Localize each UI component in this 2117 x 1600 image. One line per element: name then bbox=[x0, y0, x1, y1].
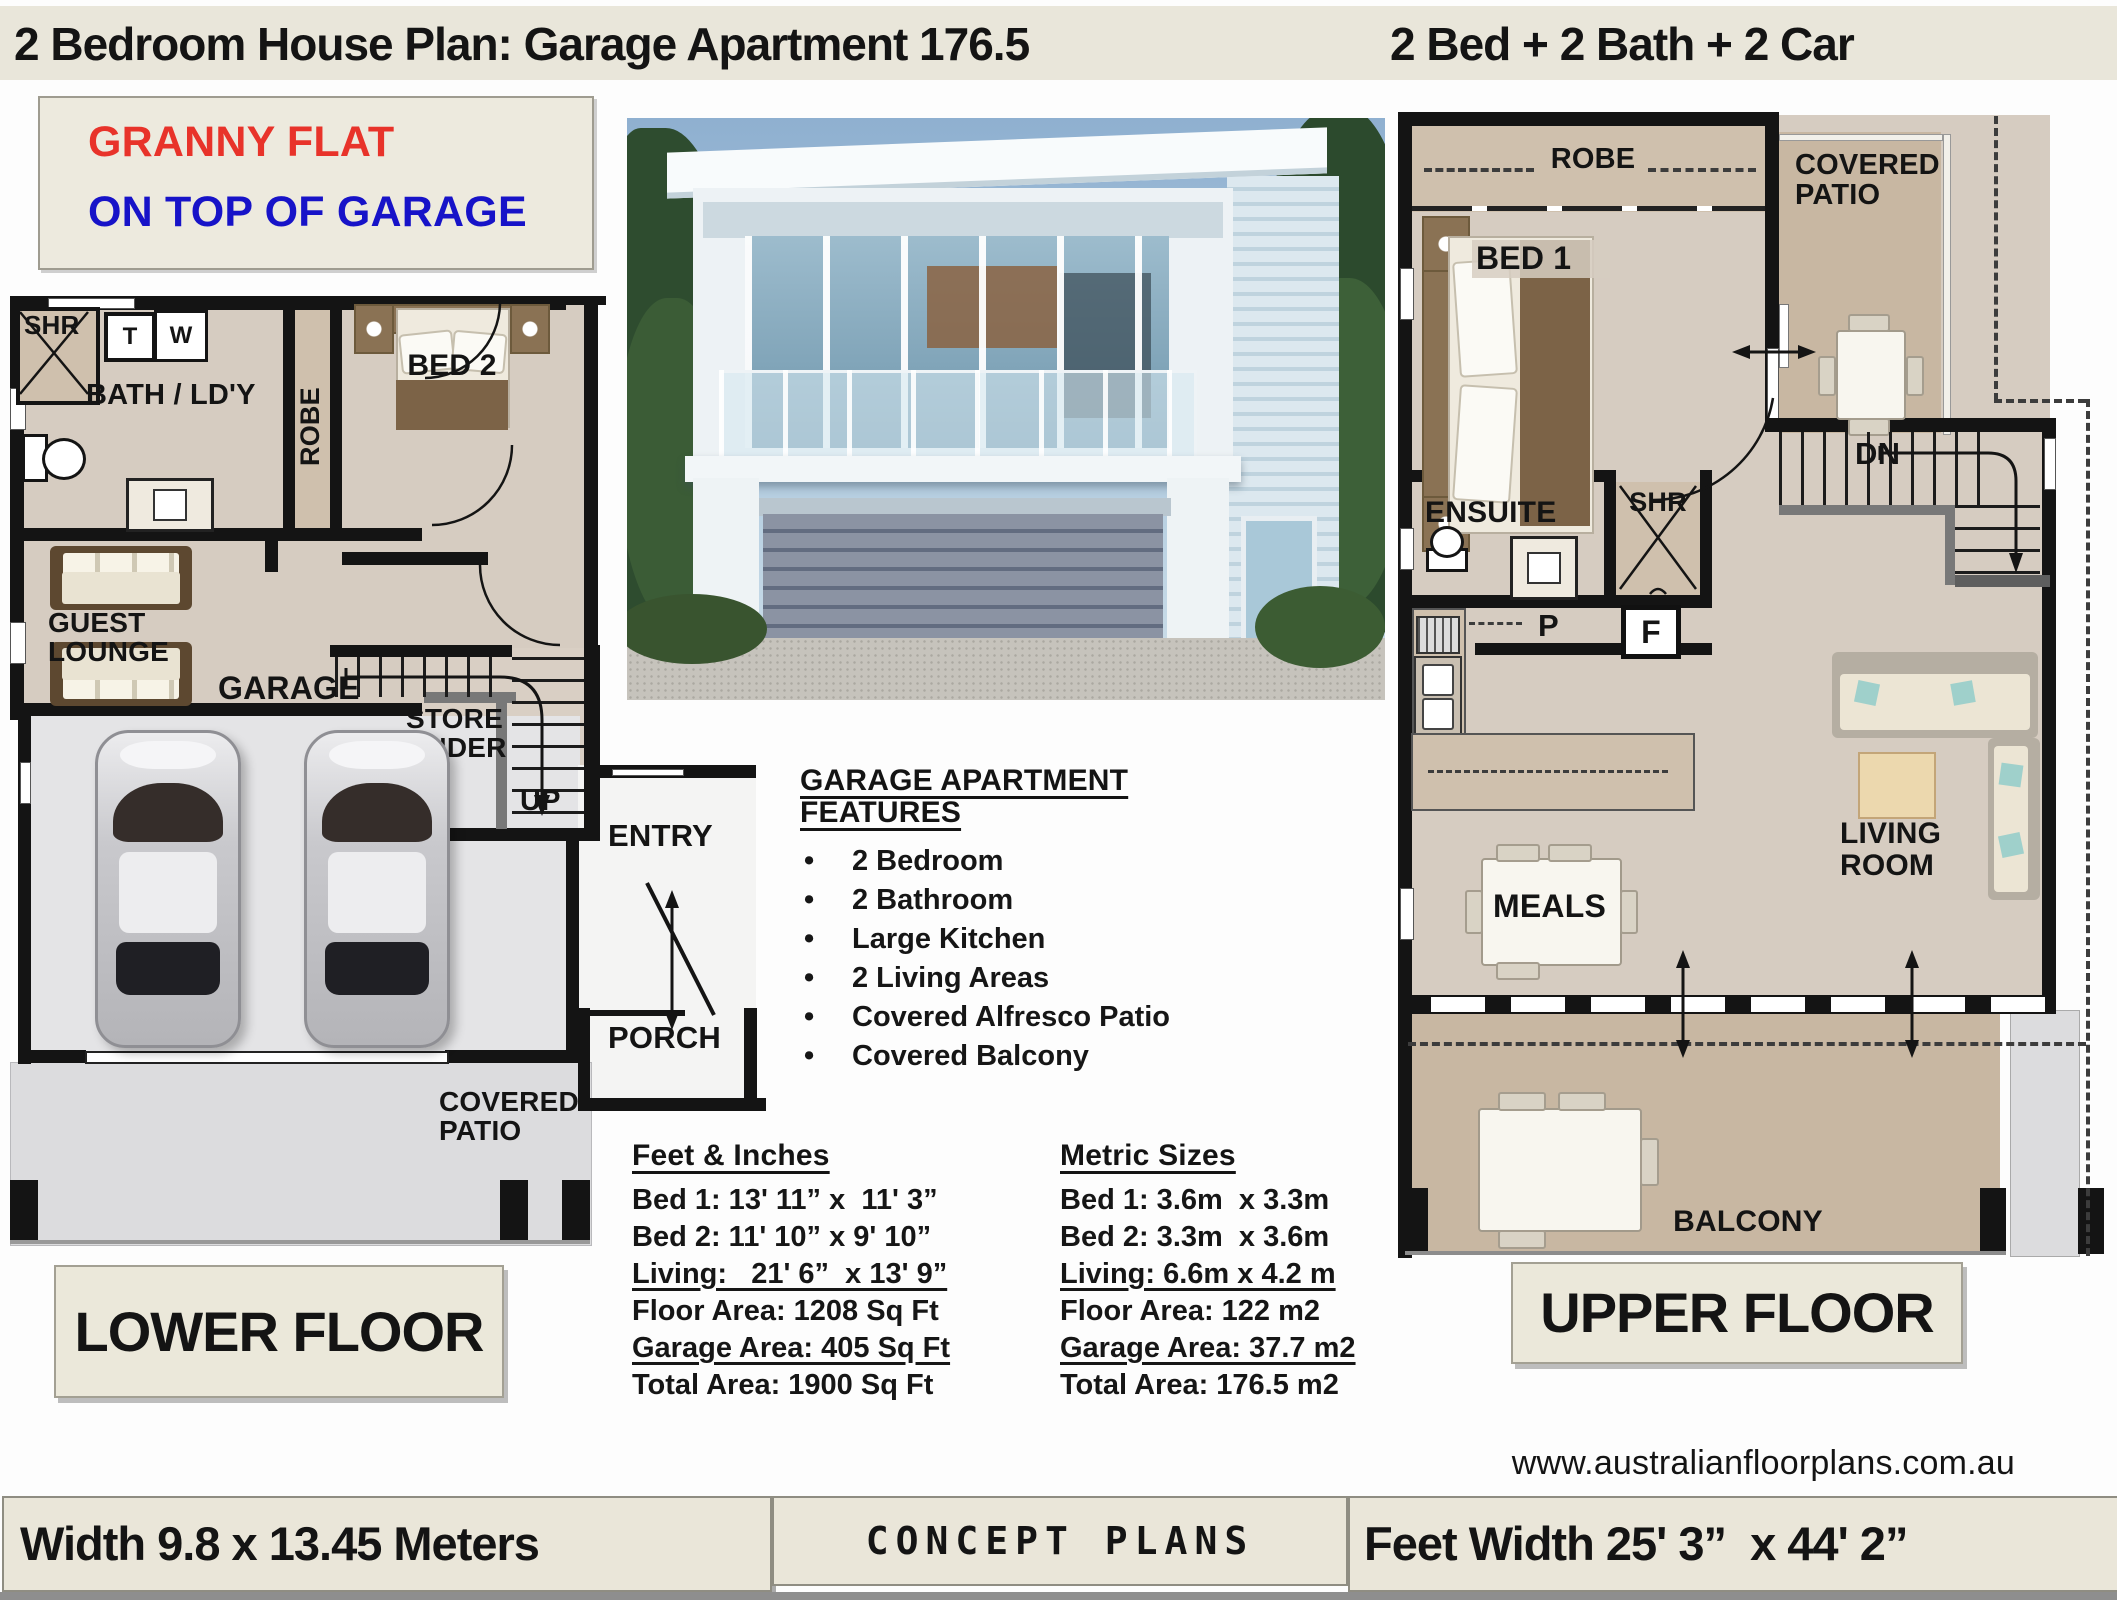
room-label-f: F bbox=[1641, 614, 1661, 650]
basin bbox=[1527, 552, 1561, 584]
room-label-covered-patio-lower: COVERED PATIO bbox=[439, 1087, 584, 1146]
dimension-row: Garage Area: 405 Sq Ft bbox=[632, 1330, 982, 1367]
sliding-door-panel bbox=[1779, 304, 1789, 368]
balcony-table bbox=[1478, 1108, 1642, 1232]
window bbox=[1400, 888, 1414, 940]
chair bbox=[1848, 314, 1890, 332]
dimension-row: Bed 2: 3.3m x 3.6m bbox=[1060, 1219, 1410, 1256]
car-roof bbox=[119, 852, 217, 933]
window bbox=[612, 769, 684, 776]
room-label-robe-upper: ROBE bbox=[1538, 144, 1648, 174]
patio-post bbox=[500, 1180, 528, 1242]
car-hood bbox=[120, 741, 215, 769]
chair bbox=[1620, 890, 1638, 934]
room-label-garage: GARAGE bbox=[218, 672, 348, 706]
room-label-entry: ENTRY bbox=[608, 820, 728, 853]
wall bbox=[584, 296, 598, 654]
room-label-p: P bbox=[1538, 610, 1578, 643]
granny-flat-callout: GRANNY FLAT ON TOP OF GARAGE bbox=[38, 96, 594, 270]
wall bbox=[330, 300, 342, 530]
wall bbox=[445, 1050, 580, 1063]
dimensions-metric-heading: Metric Sizes bbox=[1060, 1140, 1410, 1172]
photo-balcony-posts bbox=[719, 370, 1191, 458]
lower-floor-caption-box: LOWER FLOOR bbox=[54, 1265, 504, 1398]
sofa bbox=[50, 546, 192, 610]
roof-overhang-dashes bbox=[1408, 1042, 2086, 1046]
dimension-row: Total Area: 176.5 m2 bbox=[1060, 1367, 1410, 1404]
photo-bush-right bbox=[1255, 586, 1385, 668]
car-rear-window bbox=[325, 942, 429, 995]
dimension-row: Living: 21' 6” x 13' 9” bbox=[632, 1256, 982, 1293]
coffee-table bbox=[1858, 752, 1936, 819]
room-label-meals: MEALS bbox=[1481, 890, 1618, 924]
fridge-box: F bbox=[1621, 605, 1681, 659]
sofa-pillow bbox=[1950, 680, 1975, 705]
toilet-bowl bbox=[42, 438, 86, 480]
sink-bowl bbox=[1422, 698, 1454, 730]
roofline-dashed bbox=[1994, 116, 1998, 401]
upper-floor-caption-box: UPPER FLOOR bbox=[1511, 1262, 1963, 1364]
wall bbox=[1765, 418, 2056, 432]
website-url: www.australianfloorplans.com.au bbox=[1395, 1446, 2015, 1482]
robe-doors-line bbox=[1412, 206, 1765, 211]
roofline-dashed bbox=[2086, 399, 2090, 1256]
bed2-blanket bbox=[396, 380, 508, 430]
wall bbox=[18, 1050, 86, 1063]
dimension-row: Bed 2: 11' 10” x 9' 10” bbox=[632, 1219, 982, 1256]
sliding-door bbox=[1767, 348, 1779, 427]
door-threshold bbox=[590, 1010, 685, 1016]
patio-rail bbox=[1779, 134, 1943, 141]
window bbox=[20, 762, 31, 804]
features-heading: GARAGE APARTMENT FEATURES bbox=[800, 765, 1270, 828]
window bbox=[1400, 528, 1414, 570]
balcony-post bbox=[1398, 1188, 1428, 1254]
dimension-row: Floor Area: 122 m2 bbox=[1060, 1293, 1410, 1330]
sofa-pillow bbox=[1999, 763, 2024, 788]
vanity-basin bbox=[1510, 536, 1578, 600]
room-label-shr-upper: SHR bbox=[1616, 488, 1700, 516]
dimensions-feet: Feet & Inches Bed 1: 13' 11” x 11' 3” Be… bbox=[632, 1140, 982, 1404]
room-label-living-room: LIVING ROOM bbox=[1840, 818, 1960, 881]
dimension-row: Bed 1: 3.6m x 3.3m bbox=[1060, 1182, 1410, 1219]
room-label-bed1: BED 1 bbox=[1472, 240, 1610, 278]
car-windshield bbox=[113, 783, 222, 842]
wall bbox=[283, 300, 295, 530]
bed1-pillow bbox=[1452, 384, 1518, 504]
entry-floor bbox=[578, 765, 756, 1110]
footer-right-box: Feet Width 25' 3” x 44' 2” bbox=[1348, 1496, 2117, 1592]
room-label-up: UP bbox=[520, 786, 580, 816]
feature-item: 2 Bathroom bbox=[800, 881, 1270, 920]
photo-garage-door bbox=[763, 514, 1163, 650]
car-hood bbox=[329, 741, 424, 769]
balcony-edge bbox=[1405, 1251, 2006, 1255]
balcony-post bbox=[2078, 1188, 2104, 1254]
car bbox=[95, 730, 241, 1048]
room-label-t: T bbox=[123, 323, 138, 350]
car-windshield bbox=[322, 783, 431, 842]
upper-floor-plan: ROBE BED 1 COVERED PATIO ENSUITE SHR P F bbox=[1398, 108, 2110, 1278]
wall bbox=[10, 528, 422, 541]
toilet-bowl bbox=[1430, 526, 1464, 558]
chair bbox=[1906, 356, 1924, 396]
granny-flat-line2: ON TOP OF GARAGE bbox=[88, 190, 527, 235]
chair bbox=[1496, 844, 1540, 862]
stairs-up-run bbox=[335, 657, 507, 697]
window bbox=[10, 622, 26, 664]
wall bbox=[744, 1008, 757, 1111]
understair-wall bbox=[1955, 575, 2050, 587]
feature-item: Covered Alfresco Patio bbox=[800, 998, 1270, 1037]
sofa-pillow bbox=[1854, 680, 1880, 706]
chair bbox=[1548, 844, 1592, 862]
sink-bowl bbox=[1422, 664, 1454, 696]
chair bbox=[1498, 1092, 1546, 1111]
robe-dashes bbox=[1648, 168, 1756, 172]
room-label-bed2: BED 2 bbox=[396, 350, 508, 382]
nightstand bbox=[354, 304, 394, 354]
car bbox=[304, 730, 450, 1048]
patio-post bbox=[10, 1180, 38, 1242]
washer-box: W bbox=[154, 310, 208, 362]
wall bbox=[2042, 418, 2056, 1010]
nightstand bbox=[510, 304, 550, 354]
room-label-bath: BATH / LD'Y bbox=[86, 380, 306, 410]
chair bbox=[1640, 1138, 1659, 1186]
patio-post bbox=[562, 1180, 590, 1242]
patio-table bbox=[1836, 330, 1906, 420]
living-sofa-return bbox=[1988, 738, 2040, 900]
dimension-row: Floor Area: 1208 Sq Ft bbox=[632, 1293, 982, 1330]
house-plan-sheet: 2 Bedroom House Plan: Garage Apartment 1… bbox=[0, 0, 2117, 1600]
room-label-dn: DN bbox=[1855, 438, 1935, 471]
car-roof bbox=[328, 852, 426, 933]
vanity-basin bbox=[126, 478, 214, 532]
room-label-porch: PORCH bbox=[608, 1022, 728, 1055]
chair bbox=[1496, 962, 1540, 980]
balcony-window-wall bbox=[1405, 995, 2056, 1014]
dimension-row: Garage Area: 37.7 m2 bbox=[1060, 1330, 1410, 1367]
dimensions-metric: Metric Sizes Bed 1: 3.6m x 3.3m Bed 2: 3… bbox=[1060, 1140, 1410, 1404]
feature-item: Covered Balcony bbox=[800, 1037, 1270, 1076]
wall bbox=[1604, 470, 1616, 605]
room-label-shr: SHR bbox=[24, 312, 80, 339]
feature-item: Large Kitchen bbox=[800, 920, 1270, 959]
window bbox=[1400, 268, 1414, 320]
island-dashes bbox=[1428, 770, 1668, 773]
patio-edge bbox=[10, 1240, 590, 1244]
footer-brand: CONCEPT PLANS bbox=[774, 1498, 1346, 1584]
feature-item: 2 Living Areas bbox=[800, 959, 1270, 998]
granny-flat-line1: GRANNY FLAT bbox=[88, 120, 394, 165]
garage-door-line bbox=[85, 1051, 449, 1064]
car-rear-window bbox=[116, 942, 220, 995]
balcony-post bbox=[1980, 1188, 2006, 1254]
room-label-robe-lower: ROBE bbox=[296, 362, 330, 492]
tub-box: T bbox=[104, 312, 156, 362]
bed1-blanket bbox=[1520, 240, 1590, 526]
living-sofa bbox=[1832, 652, 2038, 738]
upper-floor-caption: UPPER FLOOR bbox=[1513, 1264, 1961, 1362]
dimension-row: Bed 1: 13' 11” x 11' 3” bbox=[632, 1182, 982, 1219]
chair bbox=[1818, 356, 1836, 396]
lower-floor-caption: LOWER FLOOR bbox=[56, 1267, 502, 1396]
understair-wall bbox=[1779, 505, 1955, 515]
wall bbox=[1398, 112, 1779, 126]
dimensions-feet-heading: Feet & Inches bbox=[632, 1140, 982, 1172]
room-label-balcony: BALCONY bbox=[1638, 1206, 1858, 1238]
stairs-dn-winder bbox=[1955, 505, 2040, 575]
feature-item: 2 Bedroom bbox=[800, 842, 1270, 881]
wall bbox=[578, 1098, 766, 1111]
photo-mid-slab bbox=[685, 456, 1241, 482]
footer-width-feet: Feet Width 25' 3” x 44' 2” bbox=[1364, 1498, 1907, 1590]
photo-ceiling-shadow bbox=[703, 202, 1223, 238]
dimension-row: Total Area: 1900 Sq Ft bbox=[632, 1367, 982, 1404]
footer-left-box: Width 9.8 x 13.45 Meters bbox=[2, 1496, 772, 1592]
robe-dashes bbox=[1424, 168, 1534, 172]
photo-right-column bbox=[1167, 478, 1229, 650]
wall bbox=[1700, 470, 1712, 605]
wall bbox=[584, 645, 600, 840]
footer-width-metric: Width 9.8 x 13.45 Meters bbox=[20, 1498, 539, 1590]
wall bbox=[265, 528, 278, 572]
footer-center-box: CONCEPT PLANS bbox=[772, 1496, 1348, 1586]
roofline-dashed bbox=[1994, 399, 2086, 403]
sofa-seat bbox=[62, 572, 180, 604]
page-title: 2 Bedroom House Plan: Garage Apartment 1… bbox=[14, 20, 1029, 68]
window bbox=[2044, 438, 2056, 490]
wall bbox=[342, 552, 488, 565]
room-label-ensuite: ENSUITE bbox=[1425, 497, 1605, 529]
understair-wall bbox=[1945, 505, 1955, 585]
room-label-covered-patio-upper: COVERED PATIO bbox=[1795, 150, 1945, 211]
balcony-side-gray bbox=[2010, 1010, 2080, 1257]
chair bbox=[1498, 1230, 1546, 1249]
wall bbox=[330, 645, 512, 657]
room-label-w: W bbox=[170, 322, 193, 349]
cooktop bbox=[1416, 616, 1460, 654]
dimension-row: Living: 6.6m x 4.2 m bbox=[1060, 1256, 1410, 1293]
features-list: GARAGE APARTMENT FEATURES 2 Bedroom 2 Ba… bbox=[800, 765, 1270, 1076]
lower-floor-plan: SHR T W BATH / LD'Y ROBE BED 2 GUEST LOU… bbox=[8, 292, 760, 1254]
kitchen-sink bbox=[1414, 656, 1462, 738]
chair bbox=[1558, 1092, 1606, 1111]
basin bbox=[153, 489, 187, 521]
sofa-pillow bbox=[1998, 832, 2024, 858]
page-subtitle: 2 Bed + 2 Bath + 2 Car bbox=[1390, 20, 1854, 68]
page-bottom-strip bbox=[0, 1592, 2117, 1600]
room-label-guest-lounge: GUEST LOUNGE bbox=[48, 608, 198, 667]
